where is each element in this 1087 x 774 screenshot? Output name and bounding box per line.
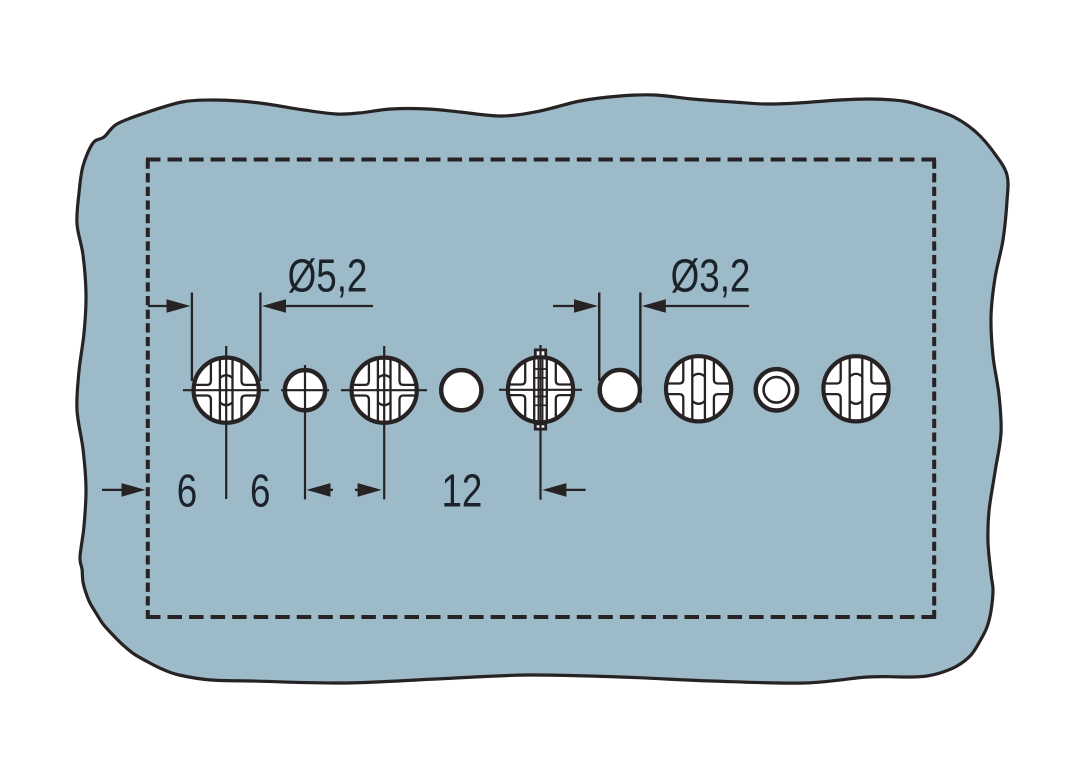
svg-text:12: 12 — [441, 464, 482, 516]
svg-text:Ø3,2: Ø3,2 — [671, 250, 751, 302]
svg-text:6: 6 — [177, 464, 197, 516]
svg-text:6: 6 — [250, 464, 270, 516]
svg-text:Ø5,2: Ø5,2 — [288, 250, 368, 302]
